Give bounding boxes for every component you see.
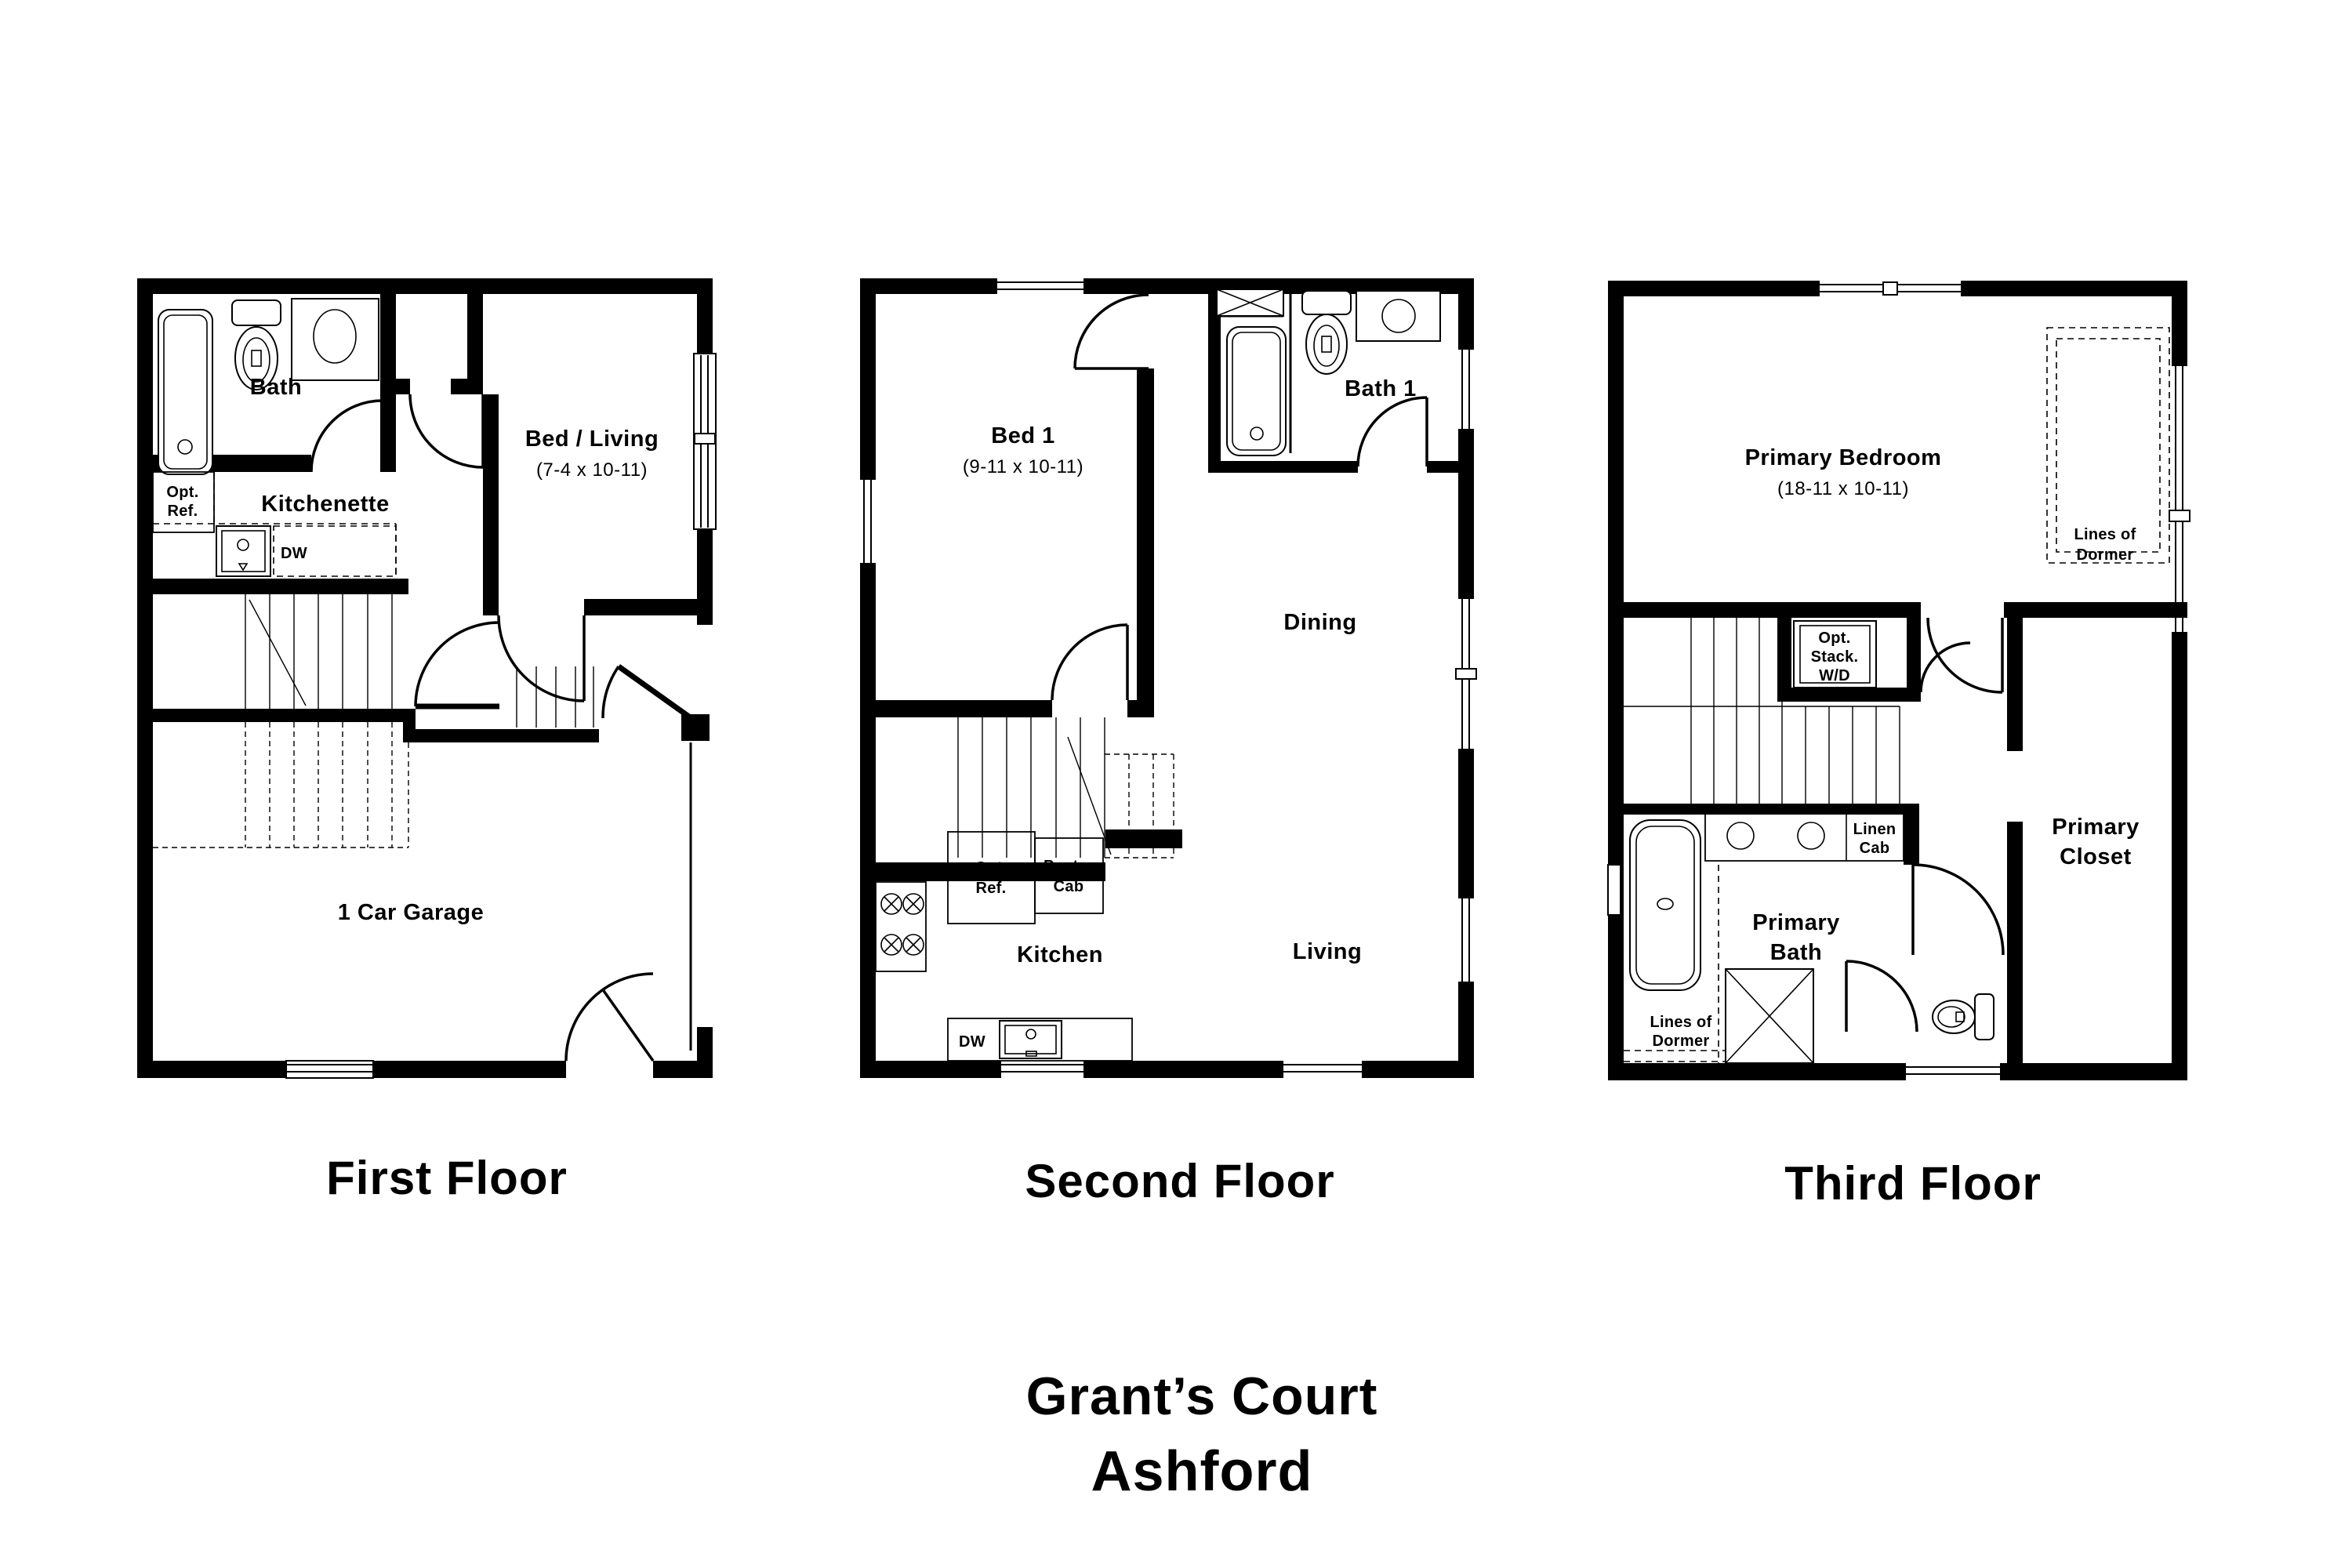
- lines-of-dormer-left-line2: Dormer: [1653, 1033, 1710, 1050]
- primary-bedroom-label: Primary Bedroom: [1745, 445, 1942, 470]
- primary-bedroom-dims: (18-11 x 10-11): [1777, 478, 1909, 499]
- community-name: Grant’s Court: [810, 1366, 1594, 1427]
- stair-treads-dashed: [153, 722, 408, 848]
- opt-ref-label-line2: Ref.: [168, 503, 198, 520]
- shower-icon: [1726, 969, 1813, 1063]
- toilet-icon: [1933, 994, 1994, 1040]
- bath-label: Bath: [250, 375, 302, 400]
- kitchen-label: Kitchen: [1017, 942, 1103, 967]
- right-wall-window-bath: [1462, 350, 1469, 429]
- second-floor-plan: Bed 1 (9-11 x 10-11) Bath 1 Dining Opt. …: [860, 278, 1474, 1078]
- left-wall-window: [864, 480, 871, 563]
- opt-ref-label-line1: Opt.: [166, 484, 198, 501]
- bath-sink-icon: [292, 299, 379, 380]
- kitchen-sink-icon: [216, 526, 270, 576]
- top-wall-window: [997, 282, 1083, 289]
- stair-treads-upper: [245, 594, 392, 709]
- bath1-label: Bath 1: [1345, 376, 1417, 401]
- lines-of-dormer-right-line1: Lines of: [2074, 526, 2136, 543]
- opt-ref-label-line2: Ref.: [976, 880, 1007, 897]
- pantry-cab-label-line1: Pantry: [1044, 858, 1094, 875]
- linen-cab-line1: Linen: [1853, 821, 1896, 838]
- kitchenette-label: Kitchenette: [261, 492, 389, 517]
- bath-sink-icon: [1356, 291, 1440, 341]
- bed1-label: Bed 1: [991, 423, 1054, 448]
- first-floor-caption: First Floor: [212, 1151, 682, 1205]
- pantry-cab-label-line2: Cab: [1054, 878, 1084, 895]
- bottom-wall-window-living: [1283, 1065, 1362, 1072]
- lines-of-dormer-right-line2: Dormer: [2077, 546, 2134, 564]
- bathtub-icon: [1227, 327, 1286, 456]
- dining-label: Dining: [1283, 610, 1356, 635]
- plan-name: Ashford: [810, 1439, 1594, 1504]
- primary-closet-line1: Primary: [2052, 815, 2140, 840]
- garage-door-window: [286, 1061, 373, 1078]
- top-wall-window: [1820, 282, 1961, 295]
- freestanding-tub-icon: [1630, 820, 1700, 990]
- third-floor-plan: Primary Bedroom (18-11 x 10-11) Lines of…: [1608, 281, 2187, 1080]
- garage-label: 1 Car Garage: [338, 900, 485, 925]
- opt-stack-wd-line1: Opt.: [1818, 630, 1850, 647]
- bed1-dims: (9-11 x 10-11): [963, 456, 1083, 477]
- lines-of-dormer-left-line1: Lines of: [1650, 1014, 1711, 1031]
- floor-plan-sheet: Bath Opt. Ref. Kitchenette Bed / Living …: [0, 0, 2352, 1568]
- second-floor-caption: Second Floor: [945, 1154, 1415, 1208]
- bathtub-icon: [158, 310, 212, 474]
- toilet-icon: [1302, 291, 1351, 374]
- right-wall-window: [2169, 366, 2190, 632]
- shower-icon: [1217, 289, 1283, 316]
- primary-bath-line2: Bath: [1770, 940, 1822, 965]
- bed-living-dims: (7-4 x 10-11): [536, 459, 648, 481]
- linen-cab-line2: Cab: [1860, 840, 1890, 857]
- dw-label: DW: [959, 1033, 985, 1051]
- stove-burners-icon: [876, 882, 926, 971]
- opt-stack-wd-line3: W/D: [1819, 667, 1850, 684]
- first-floor-walls: [137, 278, 713, 1078]
- bottom-wall-window: [1906, 1067, 2000, 1074]
- opt-ref-label-line1: Opt.: [975, 859, 1007, 877]
- bottom-wall-window-kitchen: [1001, 1065, 1083, 1072]
- dw-label: DW: [281, 545, 307, 562]
- third-floor-caption: Third Floor: [1678, 1156, 2148, 1210]
- opt-stack-wd-line2: Stack.: [1811, 648, 1859, 666]
- primary-closet-line2: Closet: [2060, 844, 2132, 869]
- right-wall-window-dining: [1456, 599, 1476, 749]
- right-wall-window-living: [1462, 898, 1469, 982]
- right-wall-window: [694, 354, 716, 529]
- bed-living-label: Bed / Living: [525, 426, 659, 452]
- living-label: Living: [1293, 939, 1362, 964]
- primary-bath-line1: Primary: [1752, 910, 1840, 935]
- first-floor-plan: Bath Opt. Ref. Kitchenette Bed / Living …: [137, 278, 713, 1078]
